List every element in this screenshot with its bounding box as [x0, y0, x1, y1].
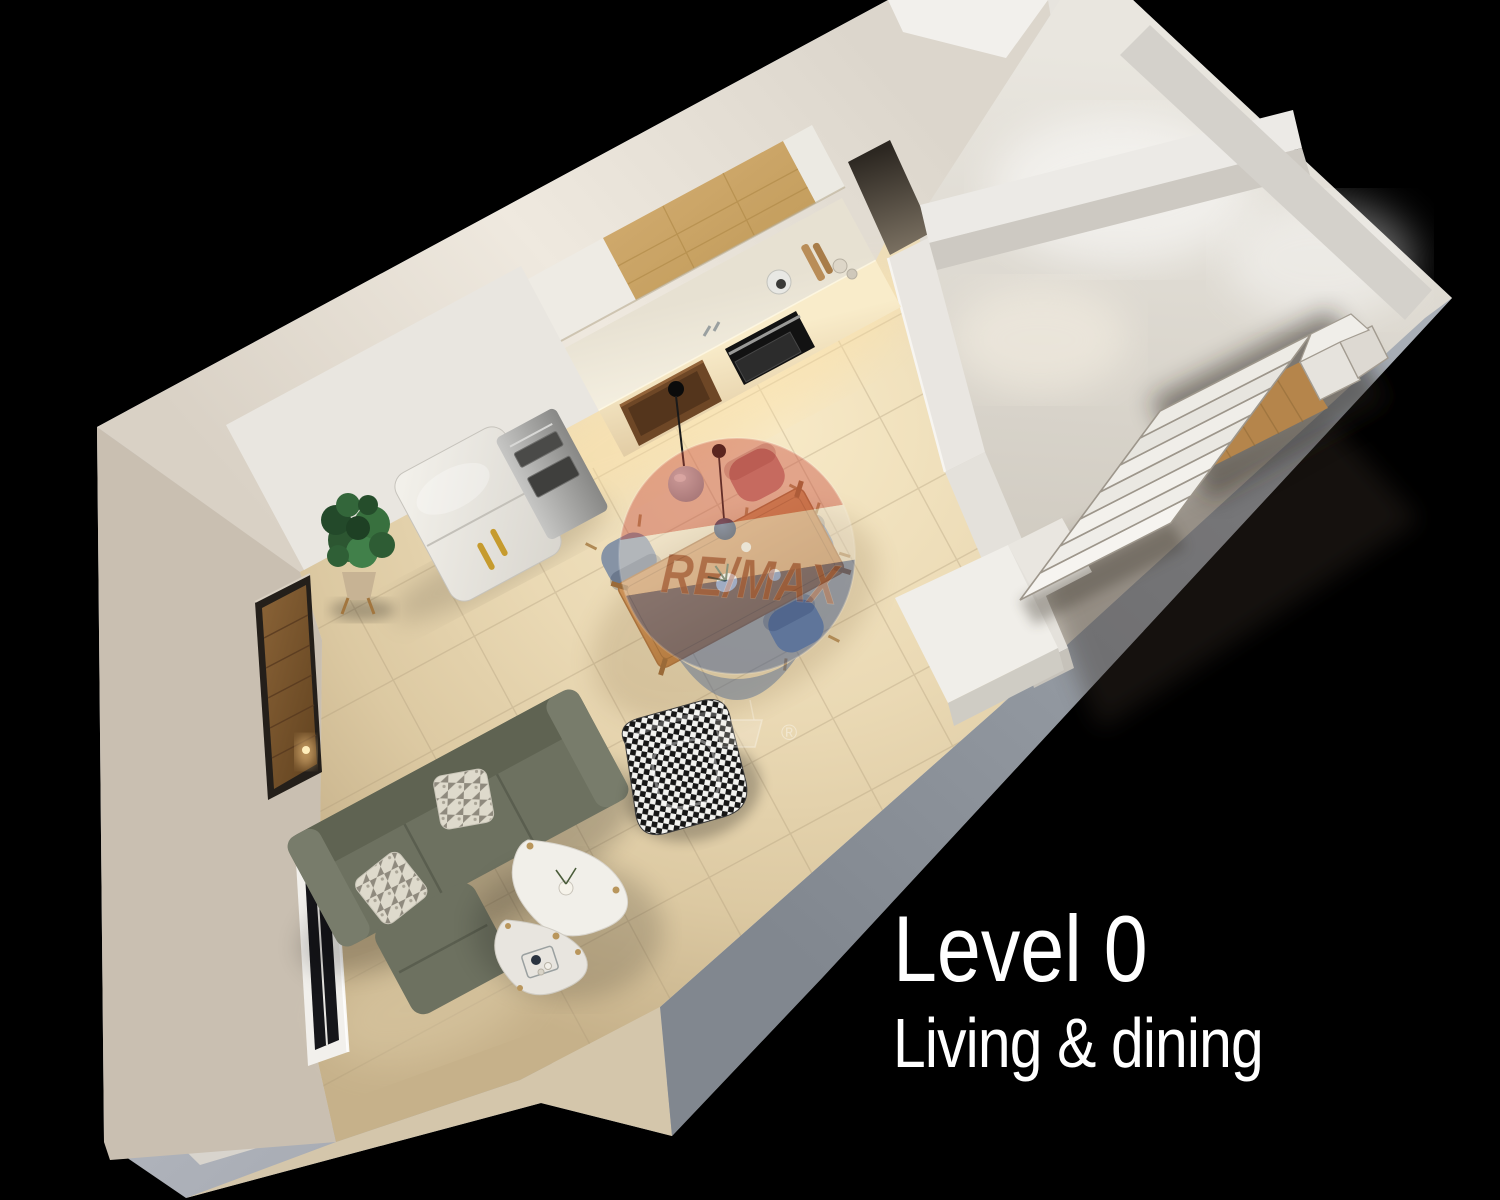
floorplan-screenshot: ® RE/MAX Level 0 Living & dining: [0, 0, 1500, 1200]
sofa-pillow: [432, 768, 495, 831]
pot-opening: [776, 279, 786, 289]
wall-glow: [950, 285, 1130, 395]
jar: [833, 259, 847, 273]
balloon-basket: [714, 720, 762, 747]
plant-pot: [342, 572, 376, 600]
sconce-light: [302, 746, 310, 754]
caption: Level 0 Living & dining: [893, 899, 1263, 1080]
remax-wordmark: RE/MAX: [659, 541, 843, 616]
floorplan-render: ® RE/MAX: [0, 0, 1500, 1200]
room-label: Living & dining: [893, 1007, 1263, 1081]
jar: [847, 269, 857, 279]
pendant-canopy: [668, 381, 684, 397]
level-label: Level 0: [893, 899, 1263, 999]
registered-trademark-symbol: ®: [781, 720, 797, 745]
